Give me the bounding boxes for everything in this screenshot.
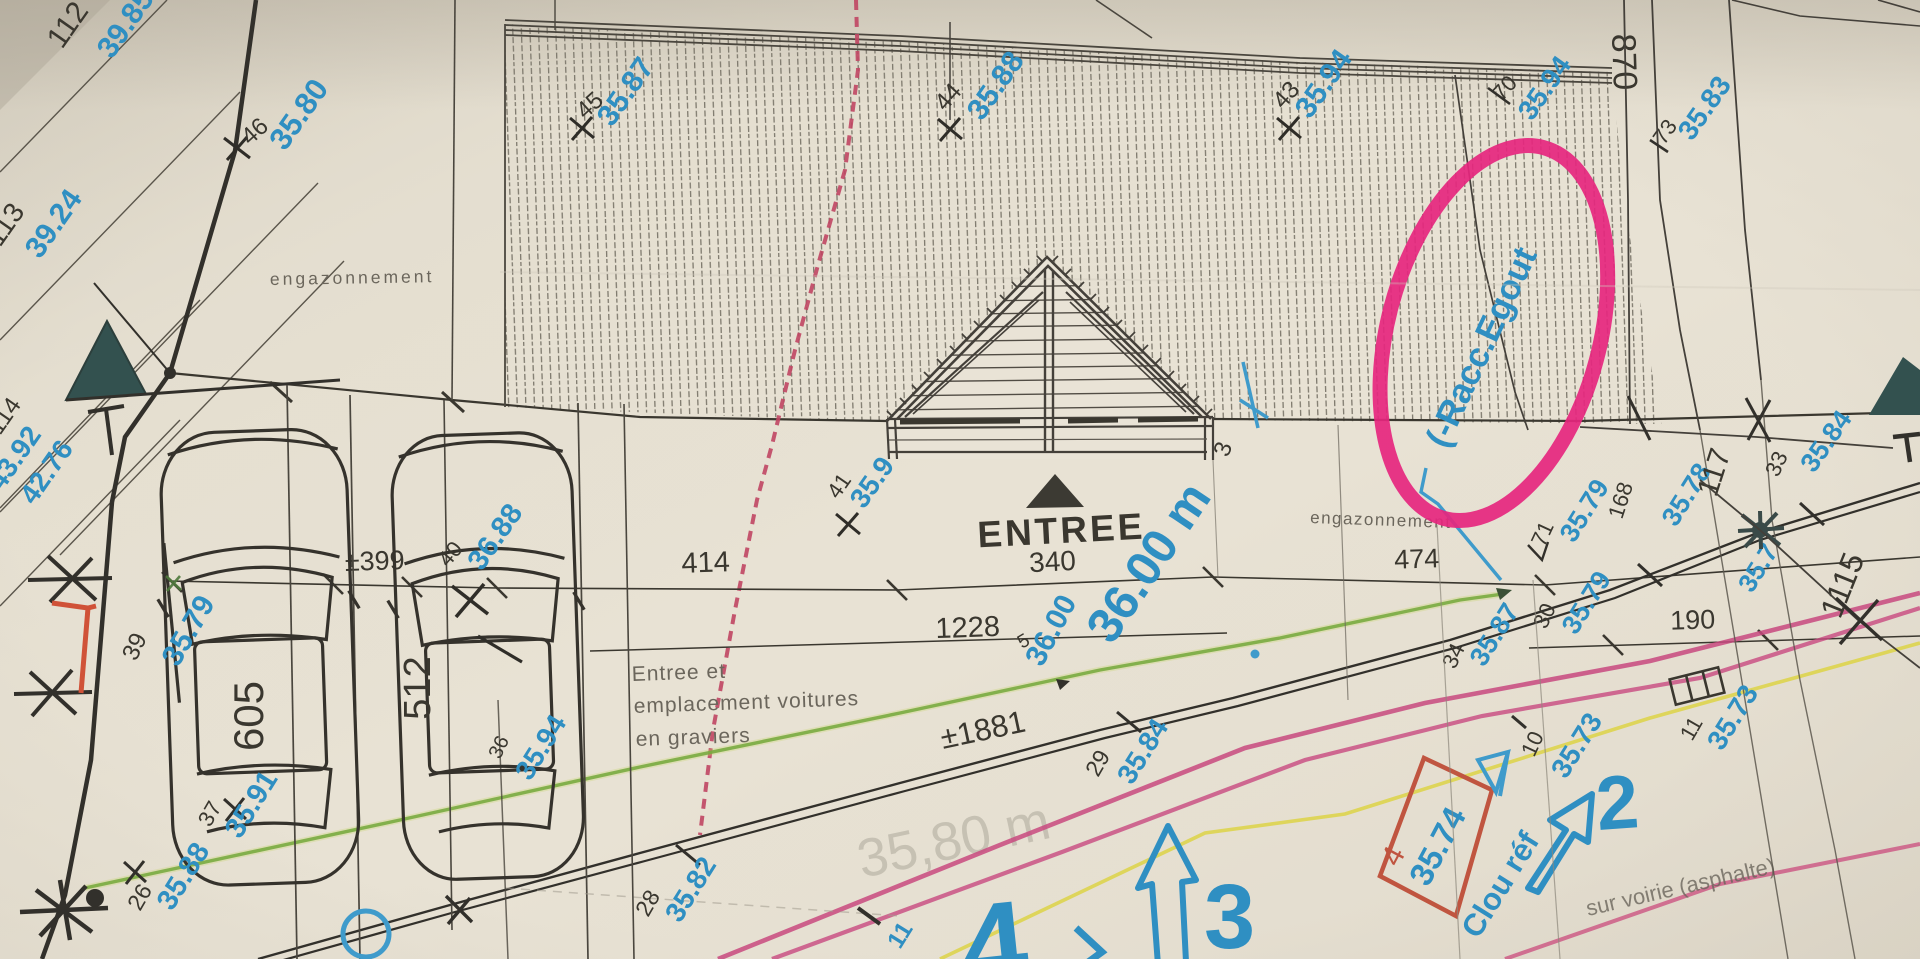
svg-text:414: 414	[681, 546, 730, 580]
svg-text:474: 474	[1394, 543, 1440, 575]
svg-text:3: 3	[1204, 866, 1255, 959]
svg-text:1228: 1228	[935, 611, 1001, 645]
svg-text:190: 190	[1670, 604, 1716, 636]
svg-text:605: 605	[225, 681, 272, 751]
svg-text:340: 340	[1028, 545, 1076, 578]
svg-text:2: 2	[1593, 759, 1641, 847]
svg-text:512: 512	[397, 656, 439, 719]
svg-text:Entree et: Entree et	[631, 660, 726, 686]
svg-text:engazonnement: engazonnement	[270, 266, 435, 289]
